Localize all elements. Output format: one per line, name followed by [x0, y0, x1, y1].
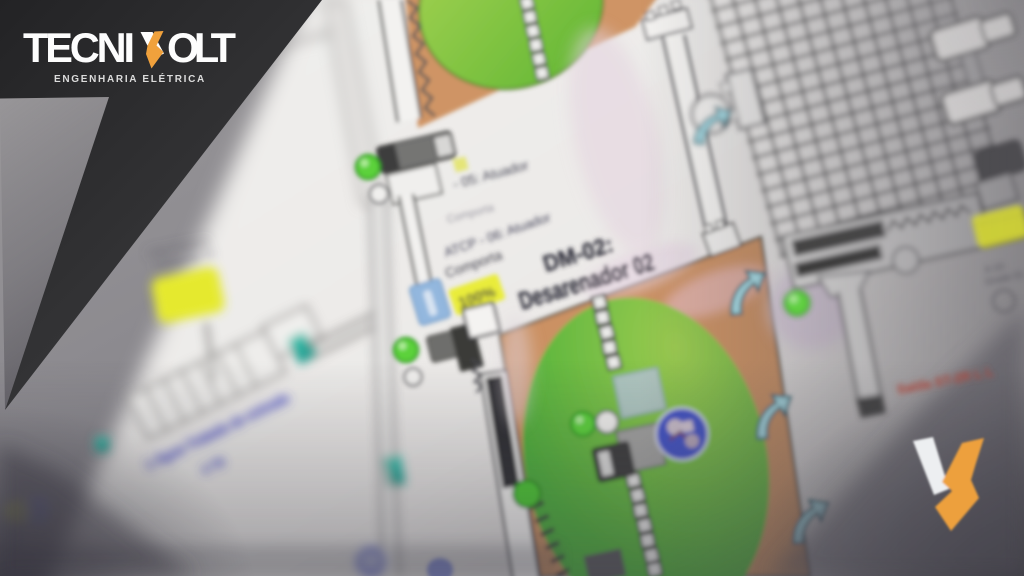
svg-text:ENGENHARIA ELÉTRICA: ENGENHARIA ELÉTRICA: [54, 72, 206, 85]
svg-text:OLT: OLT: [167, 24, 236, 71]
svg-text:TECNI: TECNI: [23, 24, 135, 71]
